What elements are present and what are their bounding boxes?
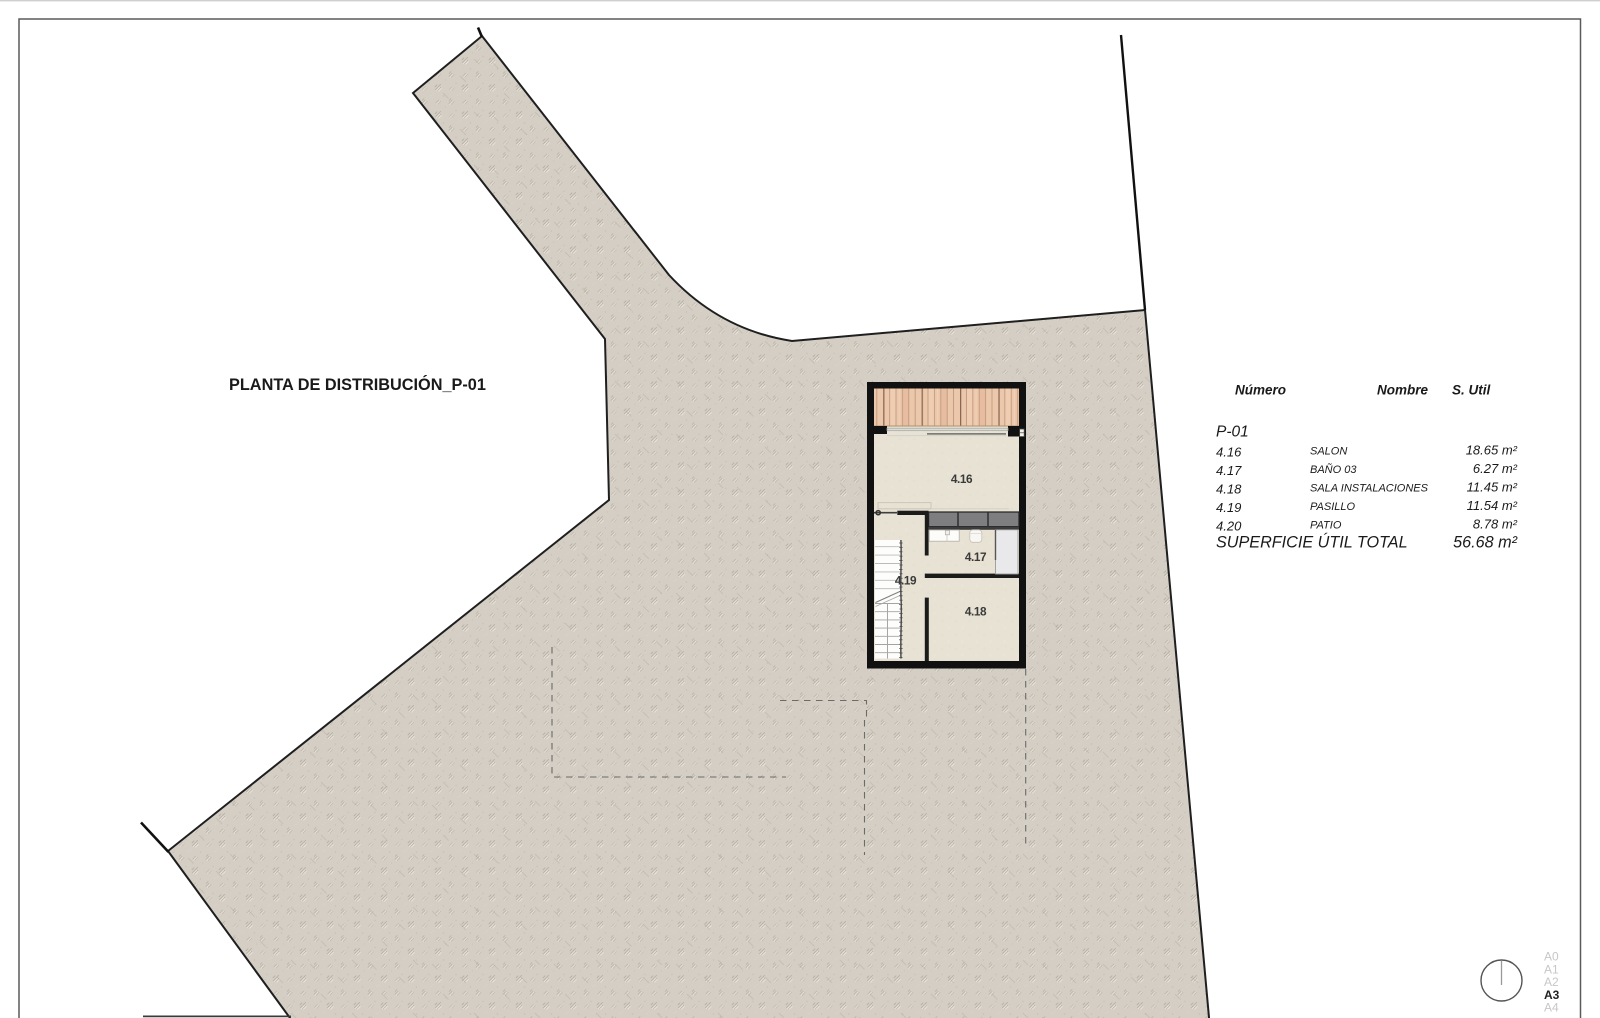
svg-text:PLANTA DE DISTRIBUCIÓN_P-01: PLANTA DE DISTRIBUCIÓN_P-01: [229, 375, 486, 394]
svg-text:A2: A2: [1544, 975, 1559, 989]
svg-text:56.68 m²: 56.68 m²: [1453, 534, 1517, 552]
svg-text:4.20: 4.20: [1216, 519, 1242, 534]
svg-text:4.18: 4.18: [1216, 482, 1242, 497]
svg-text:BAÑO 03: BAÑO 03: [1310, 463, 1357, 476]
svg-text:6.27 m²: 6.27 m²: [1473, 461, 1518, 476]
svg-text:11.45 m²: 11.45 m²: [1467, 480, 1518, 495]
svg-text:8.78 m²: 8.78 m²: [1473, 517, 1518, 532]
svg-text:P-01: P-01: [1216, 424, 1249, 441]
svg-text:18.65 m²: 18.65 m²: [1466, 443, 1518, 458]
svg-text:4.17: 4.17: [965, 550, 987, 564]
svg-text:PASILLO: PASILLO: [1310, 501, 1355, 513]
svg-text:PATIO: PATIO: [1310, 520, 1342, 532]
svg-text:4.18: 4.18: [965, 605, 987, 619]
svg-text:S. Util: S. Util: [1452, 383, 1491, 398]
svg-text:SUPERFICIE ÚTIL TOTAL: SUPERFICIE ÚTIL TOTAL: [1216, 533, 1408, 552]
svg-text:A4: A4: [1544, 1001, 1559, 1015]
svg-text:Nombre: Nombre: [1377, 383, 1428, 398]
svg-text:4.16: 4.16: [1216, 445, 1242, 460]
svg-text:4.19: 4.19: [895, 574, 917, 588]
svg-text:11.54 m²: 11.54 m²: [1467, 498, 1518, 513]
svg-text:4.16: 4.16: [951, 472, 973, 486]
svg-text:4.17: 4.17: [1216, 463, 1242, 478]
svg-text:SALON: SALON: [1310, 446, 1347, 458]
svg-text:SALA INSTALACIONES: SALA INSTALACIONES: [1310, 483, 1429, 495]
svg-text:Número: Número: [1235, 383, 1286, 398]
svg-text:4.19: 4.19: [1216, 500, 1241, 515]
